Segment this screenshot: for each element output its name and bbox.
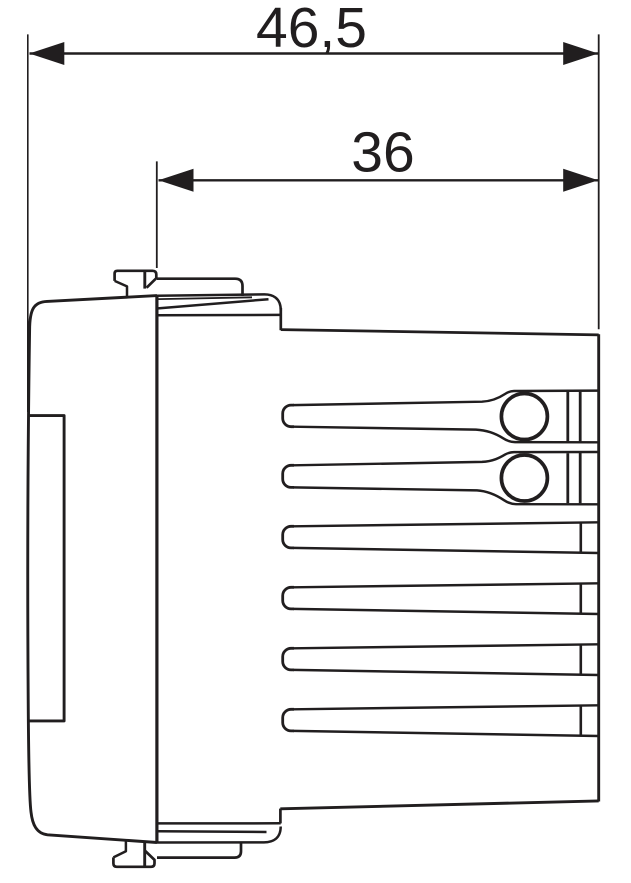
svg-text:36: 36 xyxy=(351,121,414,185)
svg-text:46,5: 46,5 xyxy=(256,0,367,60)
